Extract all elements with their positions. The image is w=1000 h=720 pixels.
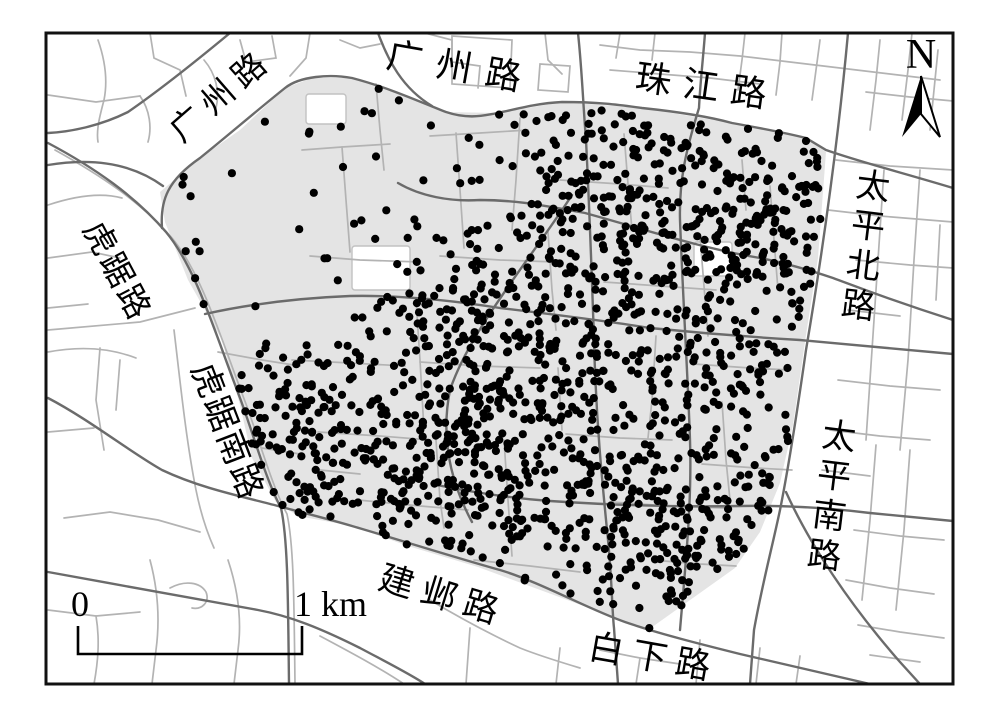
scale-zero-label: 0: [71, 584, 89, 624]
poi-dot: [576, 519, 584, 527]
poi-dot: [558, 386, 566, 394]
poi-dot: [436, 365, 444, 373]
poi-dot: [622, 222, 630, 230]
poi-dot: [770, 259, 778, 267]
poi-dot: [521, 398, 529, 406]
poi-dot: [548, 522, 556, 530]
minor-road: [830, 430, 930, 440]
minor-road: [538, 64, 570, 92]
minor-road: [97, 40, 105, 142]
poi-dot: [593, 543, 601, 551]
poi-dot: [675, 333, 683, 341]
poi-dot: [634, 309, 642, 317]
poi-dot: [444, 435, 452, 443]
minor-road: [822, 470, 870, 476]
poi-dot: [548, 165, 556, 173]
poi-dot: [662, 522, 670, 530]
poi-dot: [614, 310, 622, 318]
poi-dot: [369, 455, 377, 463]
poi-dot: [795, 313, 803, 321]
poi-dot: [683, 401, 691, 409]
poi-dot: [305, 417, 313, 425]
poi-dot: [450, 275, 458, 283]
poi-dot: [788, 323, 796, 331]
poi-dot: [496, 156, 504, 164]
poi-dot: [692, 319, 700, 327]
minor-road: [150, 560, 158, 684]
poi-dot: [629, 127, 637, 135]
poi-dot: [549, 418, 557, 426]
poi-dot: [287, 470, 295, 478]
poi-dot: [286, 436, 294, 444]
poi-dot: [420, 482, 428, 490]
poi-dot: [655, 515, 663, 523]
poi-dot: [663, 310, 671, 318]
poi-dot: [261, 118, 269, 126]
poi-dot: [465, 134, 473, 142]
poi-dot: [599, 367, 607, 375]
poi-dot: [753, 148, 761, 156]
poi-dot: [751, 307, 759, 315]
poi-dot: [662, 486, 670, 494]
poi-dot: [644, 346, 652, 354]
poi-dot: [449, 284, 457, 292]
poi-dot: [646, 509, 654, 517]
poi-dot: [604, 562, 612, 570]
poi-dot: [697, 537, 705, 545]
poi-dot: [536, 341, 544, 349]
poi-dot: [515, 342, 523, 350]
poi-dot: [576, 290, 584, 298]
poi-dot: [346, 375, 354, 383]
minor-road: [696, 640, 700, 684]
poi-dot: [702, 406, 710, 414]
poi-dot: [288, 403, 296, 411]
poi-dot: [647, 449, 655, 457]
poi-dot: [683, 223, 691, 231]
poi-dot: [668, 167, 676, 175]
poi-dot: [192, 238, 200, 246]
poi-dot: [309, 442, 317, 450]
poi-dot: [712, 425, 720, 433]
poi-dot: [782, 425, 790, 433]
poi-dot: [566, 589, 574, 597]
poi-dot: [641, 211, 649, 219]
poi-dot: [750, 348, 758, 356]
poi-dot: [632, 582, 640, 590]
poi-dot: [526, 320, 534, 328]
poi-dot: [784, 437, 792, 445]
poi-dot: [608, 540, 616, 548]
poi-dot: [412, 346, 420, 354]
poi-dot: [425, 538, 433, 546]
poi-dot: [403, 411, 411, 419]
poi-dot: [703, 204, 711, 212]
poi-dot: [756, 378, 764, 386]
poi-dot: [436, 308, 444, 316]
poi-dot: [484, 471, 492, 479]
poi-dot: [425, 402, 433, 410]
poi-dot: [659, 505, 667, 513]
poi-dot: [416, 426, 424, 434]
poi-dot: [601, 526, 609, 534]
poi-dot: [738, 149, 746, 157]
poi-dot: [434, 418, 442, 426]
poi-dot: [526, 254, 534, 262]
major-road: [786, 492, 920, 684]
poi-dot: [672, 353, 680, 361]
poi-dot: [771, 216, 779, 224]
poi-dot: [671, 418, 679, 426]
poi-dot: [681, 380, 689, 388]
poi-dot: [756, 216, 764, 224]
poi-dot: [262, 340, 270, 348]
poi-dot: [351, 449, 359, 457]
poi-dot: [598, 126, 606, 134]
poi-dot: [435, 324, 443, 332]
poi-dot: [613, 256, 621, 264]
poi-dot: [196, 247, 204, 255]
poi-dot: [278, 501, 286, 509]
poi-dot: [766, 481, 774, 489]
poi-dot: [372, 152, 380, 160]
poi-dot: [557, 402, 565, 410]
poi-dot: [446, 449, 454, 457]
poi-dot: [347, 361, 355, 369]
poi-dot: [652, 308, 660, 316]
poi-dot: [619, 513, 627, 521]
poi-dot: [540, 374, 548, 382]
poi-dot: [530, 514, 538, 522]
poi-dot: [764, 506, 772, 514]
poi-dot: [469, 335, 477, 343]
poi-dot: [525, 271, 533, 279]
poi-dot: [634, 272, 642, 280]
minor-road: [96, 348, 104, 450]
poi-dot: [742, 387, 750, 395]
poi-dot: [732, 528, 740, 536]
poi-dot: [474, 316, 482, 324]
poi-dot: [593, 349, 601, 357]
poi-dot: [680, 527, 688, 535]
poi-dot: [727, 449, 735, 457]
poi-dot: [629, 145, 637, 153]
poi-dot: [806, 280, 814, 288]
poi-dot: [737, 231, 745, 239]
poi-dot: [607, 501, 615, 509]
poi-dot: [687, 154, 695, 162]
poi-dot: [403, 540, 411, 548]
poi-dot: [505, 366, 513, 374]
poi-dot: [677, 499, 685, 507]
poi-dot: [519, 430, 527, 438]
poi-dot: [523, 524, 531, 532]
poi-dot: [712, 388, 720, 396]
poi-dot: [447, 250, 455, 258]
poi-dot: [245, 384, 253, 392]
poi-dot: [758, 469, 766, 477]
poi-dot: [683, 142, 691, 150]
poi-dot: [796, 297, 804, 305]
poi-dot: [728, 252, 736, 260]
poi-dot: [656, 243, 664, 251]
minor-road: [150, 33, 186, 96]
poi-dot: [591, 446, 599, 454]
poi-dot: [635, 291, 643, 299]
poi-dot: [470, 290, 478, 298]
poi-dot: [383, 327, 391, 335]
poi-dot: [367, 364, 375, 372]
poi-dot: [390, 474, 398, 482]
poi-dot: [611, 479, 619, 487]
poi-dot: [323, 254, 331, 262]
poi-dot: [479, 553, 487, 561]
poi-dot: [739, 407, 747, 415]
poi-dot: [764, 340, 772, 348]
poi-dot: [705, 250, 713, 258]
poi-dot: [265, 441, 273, 449]
poi-dot: [441, 536, 449, 544]
poi-dot: [692, 205, 700, 213]
poi-dot: [671, 464, 679, 472]
poi-dot: [563, 378, 571, 386]
poi-dot: [437, 459, 445, 467]
poi-dot: [493, 291, 501, 299]
poi-dot: [516, 481, 524, 489]
poi-dot: [715, 401, 723, 409]
poi-dot: [716, 296, 724, 304]
poi-dot: [619, 401, 627, 409]
poi-dot: [228, 169, 236, 177]
poi-dot: [627, 194, 635, 202]
poi-dot: [420, 334, 428, 342]
poi-dot: [759, 252, 767, 260]
poi-dot: [716, 349, 724, 357]
poi-dot: [734, 538, 742, 546]
poi-dot: [329, 383, 337, 391]
poi-dot: [591, 286, 599, 294]
poi-dot: [656, 159, 664, 167]
poi-dot: [536, 414, 544, 422]
poi-dot: [656, 571, 664, 579]
poi-dot: [746, 365, 754, 373]
poi-dot: [339, 163, 347, 171]
poi-dot: [435, 284, 443, 292]
poi-dot: [379, 456, 387, 464]
poi-dot: [261, 414, 269, 422]
poi-dot: [722, 133, 730, 141]
poi-dot: [550, 391, 558, 399]
poi-dot: [644, 549, 652, 557]
poi-dot: [495, 111, 503, 119]
poi-dot: [382, 406, 390, 414]
poi-dot: [310, 189, 318, 197]
minor-road: [452, 36, 512, 88]
poi-dot: [575, 454, 583, 462]
poi-dot: [788, 299, 796, 307]
poi-dot: [684, 391, 692, 399]
poi-dot: [552, 571, 560, 579]
poi-dot: [544, 542, 552, 550]
poi-dot: [286, 495, 294, 503]
poi-dot: [445, 521, 453, 529]
poi-dot: [711, 338, 719, 346]
poi-dot: [687, 121, 695, 129]
minor-road: [896, 450, 910, 610]
poi-dot: [537, 443, 545, 451]
poi-dot: [353, 427, 361, 435]
poi-dot: [612, 351, 620, 359]
poi-dot: [582, 176, 590, 184]
poi-dot: [520, 301, 528, 309]
poi-dot: [609, 143, 617, 151]
poi-dot: [399, 487, 407, 495]
poi-dot: [593, 234, 601, 242]
poi-dot: [476, 399, 484, 407]
poi-dot: [471, 381, 479, 389]
poi-dot: [676, 430, 684, 438]
poi-dot: [702, 128, 710, 136]
poi-dot: [340, 497, 348, 505]
poi-dot: [454, 419, 462, 427]
poi-dot: [600, 220, 608, 228]
poi-dot: [710, 451, 718, 459]
poi-dot: [807, 216, 815, 224]
poi-dot: [306, 505, 314, 513]
poi-dot: [745, 471, 753, 479]
poi-dot: [302, 381, 310, 389]
poi-dot: [721, 495, 729, 503]
poi-dot: [451, 357, 459, 365]
poi-dot: [480, 295, 488, 303]
poi-dot: [574, 481, 582, 489]
poi-dot: [780, 264, 788, 272]
poi-dot: [754, 368, 762, 376]
poi-dot: [674, 454, 682, 462]
poi-dot: [605, 192, 613, 200]
minor-road: [48, 308, 195, 330]
poi-dot: [684, 545, 692, 553]
poi-dot: [178, 181, 186, 189]
poi-dot: [550, 466, 558, 474]
poi-dot: [731, 316, 739, 324]
poi-dot: [318, 473, 326, 481]
minor-road: [48, 349, 136, 358]
minor-road: [48, 304, 88, 308]
poi-dot: [689, 357, 697, 365]
poi-dot: [609, 426, 617, 434]
minor-road: [48, 95, 140, 102]
poi-dot: [567, 129, 575, 137]
poi-dot: [434, 478, 442, 486]
poi-dot: [698, 157, 706, 165]
poi-dot: [559, 116, 567, 124]
poi-dot: [564, 410, 572, 418]
poi-dot: [350, 220, 358, 228]
minor-road: [466, 628, 470, 684]
poi-dot: [329, 459, 337, 467]
poi-dot: [635, 357, 643, 365]
poi-dot: [560, 448, 568, 456]
poi-dot: [778, 184, 786, 192]
poi-dot: [587, 427, 595, 435]
poi-dot: [297, 356, 305, 364]
poi-dot: [445, 502, 453, 510]
poi-dot: [677, 507, 685, 515]
poi-dot: [787, 288, 795, 296]
poi-dot: [637, 554, 645, 562]
poi-dot: [687, 449, 695, 457]
minor-road: [48, 195, 122, 205]
poi-dot: [667, 586, 675, 594]
poi-dot: [474, 226, 482, 234]
poi-dot: [471, 448, 479, 456]
poi-dot: [528, 377, 536, 385]
poi-dot: [695, 126, 703, 134]
poi-dot: [442, 316, 450, 324]
poi-dot: [655, 200, 663, 208]
poi-dot: [572, 544, 580, 552]
poi-dot: [710, 434, 718, 442]
poi-dot: [739, 319, 747, 327]
poi-dot: [439, 236, 447, 244]
poi-dot: [626, 185, 634, 193]
north-label: N: [906, 32, 936, 78]
poi-dot: [439, 443, 447, 451]
minor-road: [48, 428, 94, 432]
poi-dot: [357, 216, 365, 224]
poi-dot: [583, 566, 591, 574]
poi-dot: [622, 357, 630, 365]
poi-dot: [270, 488, 278, 496]
poi-dot: [614, 270, 622, 278]
poi-dot: [569, 215, 577, 223]
poi-dot: [723, 169, 731, 177]
poi-dot: [636, 326, 644, 334]
minor-road: [204, 60, 218, 108]
poi-dot: [623, 477, 631, 485]
poi-dot: [801, 188, 809, 196]
poi-dot: [471, 458, 479, 466]
poi-dot: [257, 461, 265, 469]
poi-dot: [518, 516, 526, 524]
poi-dot: [751, 461, 759, 469]
poi-dot: [687, 339, 695, 347]
poi-dot: [435, 355, 443, 363]
poi-dot: [425, 299, 433, 307]
poi-dot: [802, 232, 810, 240]
poi-dot: [655, 175, 663, 183]
poi-dot: [713, 482, 721, 490]
poi-dot: [248, 439, 256, 447]
poi-dot: [393, 260, 401, 268]
poi-dot: [567, 178, 575, 186]
minor-road: [836, 160, 953, 170]
poi-dot: [497, 471, 505, 479]
poi-dot: [365, 327, 373, 335]
poi-dot: [566, 388, 574, 396]
poi-dot: [678, 576, 686, 584]
poi-dot: [731, 478, 739, 486]
scale-km-label: 1 km: [294, 584, 367, 624]
poi-dot: [681, 311, 689, 319]
poi-dot: [645, 624, 653, 632]
poi-dot: [419, 418, 427, 426]
poi-dot: [783, 364, 791, 372]
poi-dot: [584, 480, 592, 488]
poi-dot: [661, 369, 669, 377]
minor-road: [174, 330, 214, 548]
